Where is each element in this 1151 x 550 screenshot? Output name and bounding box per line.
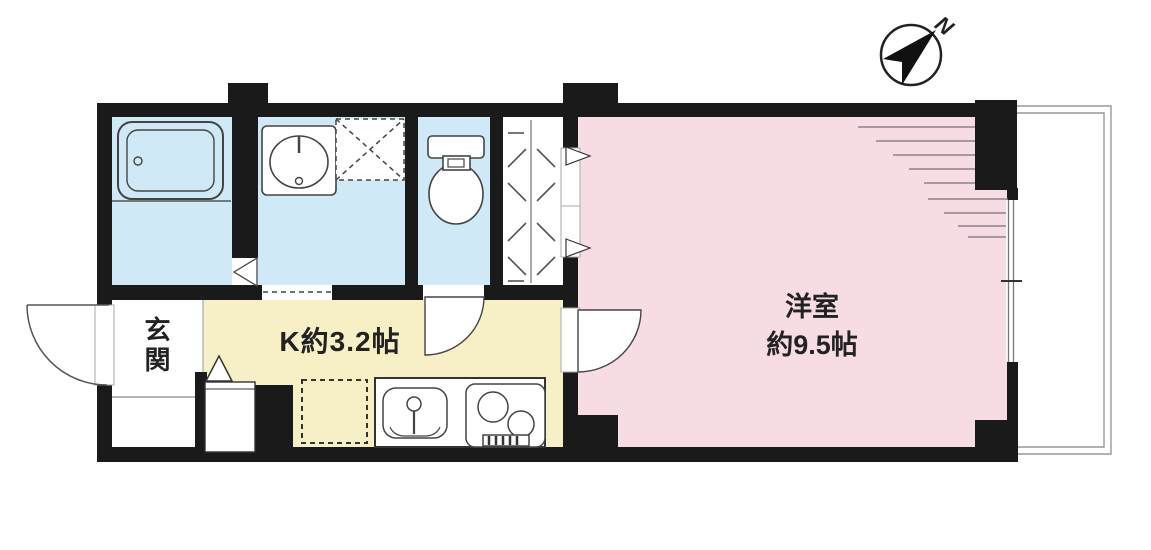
wall-pillar-neck: [1007, 188, 1018, 202]
wall-bump-mid: [563, 83, 618, 105]
washbasin: [262, 126, 336, 195]
entrance-label: 玄関: [133, 316, 175, 402]
floor-plan: 玄関 K約3.2帖 洋室 約9.5帖 N: [0, 0, 1151, 550]
closet-floor: [503, 117, 563, 285]
entrance-door-frame: [95, 305, 114, 385]
north-compass: [881, 25, 941, 85]
kitchen-label: K約3.2帖: [250, 320, 430, 360]
main-room-floor: [578, 117, 1007, 447]
wall-bath-washroom: [232, 117, 258, 258]
wall-left: [97, 103, 112, 462]
wall-top: [97, 103, 1017, 117]
toilet-tank: [428, 136, 484, 158]
wall-toilet-closet: [490, 117, 503, 300]
gas-stove: [466, 384, 545, 447]
main-room-label: 洋室 約9.5帖: [722, 288, 902, 364]
washing-machine-space: [336, 119, 404, 180]
kitchen-sink: [383, 388, 447, 438]
toilet: [428, 136, 484, 224]
wall-band-under-washroom: [332, 285, 425, 300]
balcony-outline: [1017, 106, 1111, 454]
toilet-bowl: [429, 164, 483, 224]
toilet-seat-hinge: [443, 156, 470, 170]
floor-plan-drawing: [0, 0, 1151, 550]
wall-pillar-topright: [975, 100, 1017, 190]
mainroom-door-frame: [561, 308, 580, 372]
wall-band-under-bathroom: [112, 285, 262, 300]
wall-bump-left: [228, 83, 268, 105]
wall-step-bottomright: [975, 420, 1018, 450]
wall-kitchen-block: [255, 385, 293, 447]
bathroom-door-triangle: [234, 258, 257, 286]
kitchen-counter: [375, 378, 545, 447]
main-room-name: 洋室: [722, 288, 902, 326]
wall-step-bottomleft: [578, 415, 618, 447]
main-room-size: 約9.5帖: [722, 326, 902, 364]
shoe-cabinet: [205, 382, 255, 452]
wall-washroom-toilet: [405, 117, 418, 300]
wall-band-under-closet: [482, 285, 563, 300]
